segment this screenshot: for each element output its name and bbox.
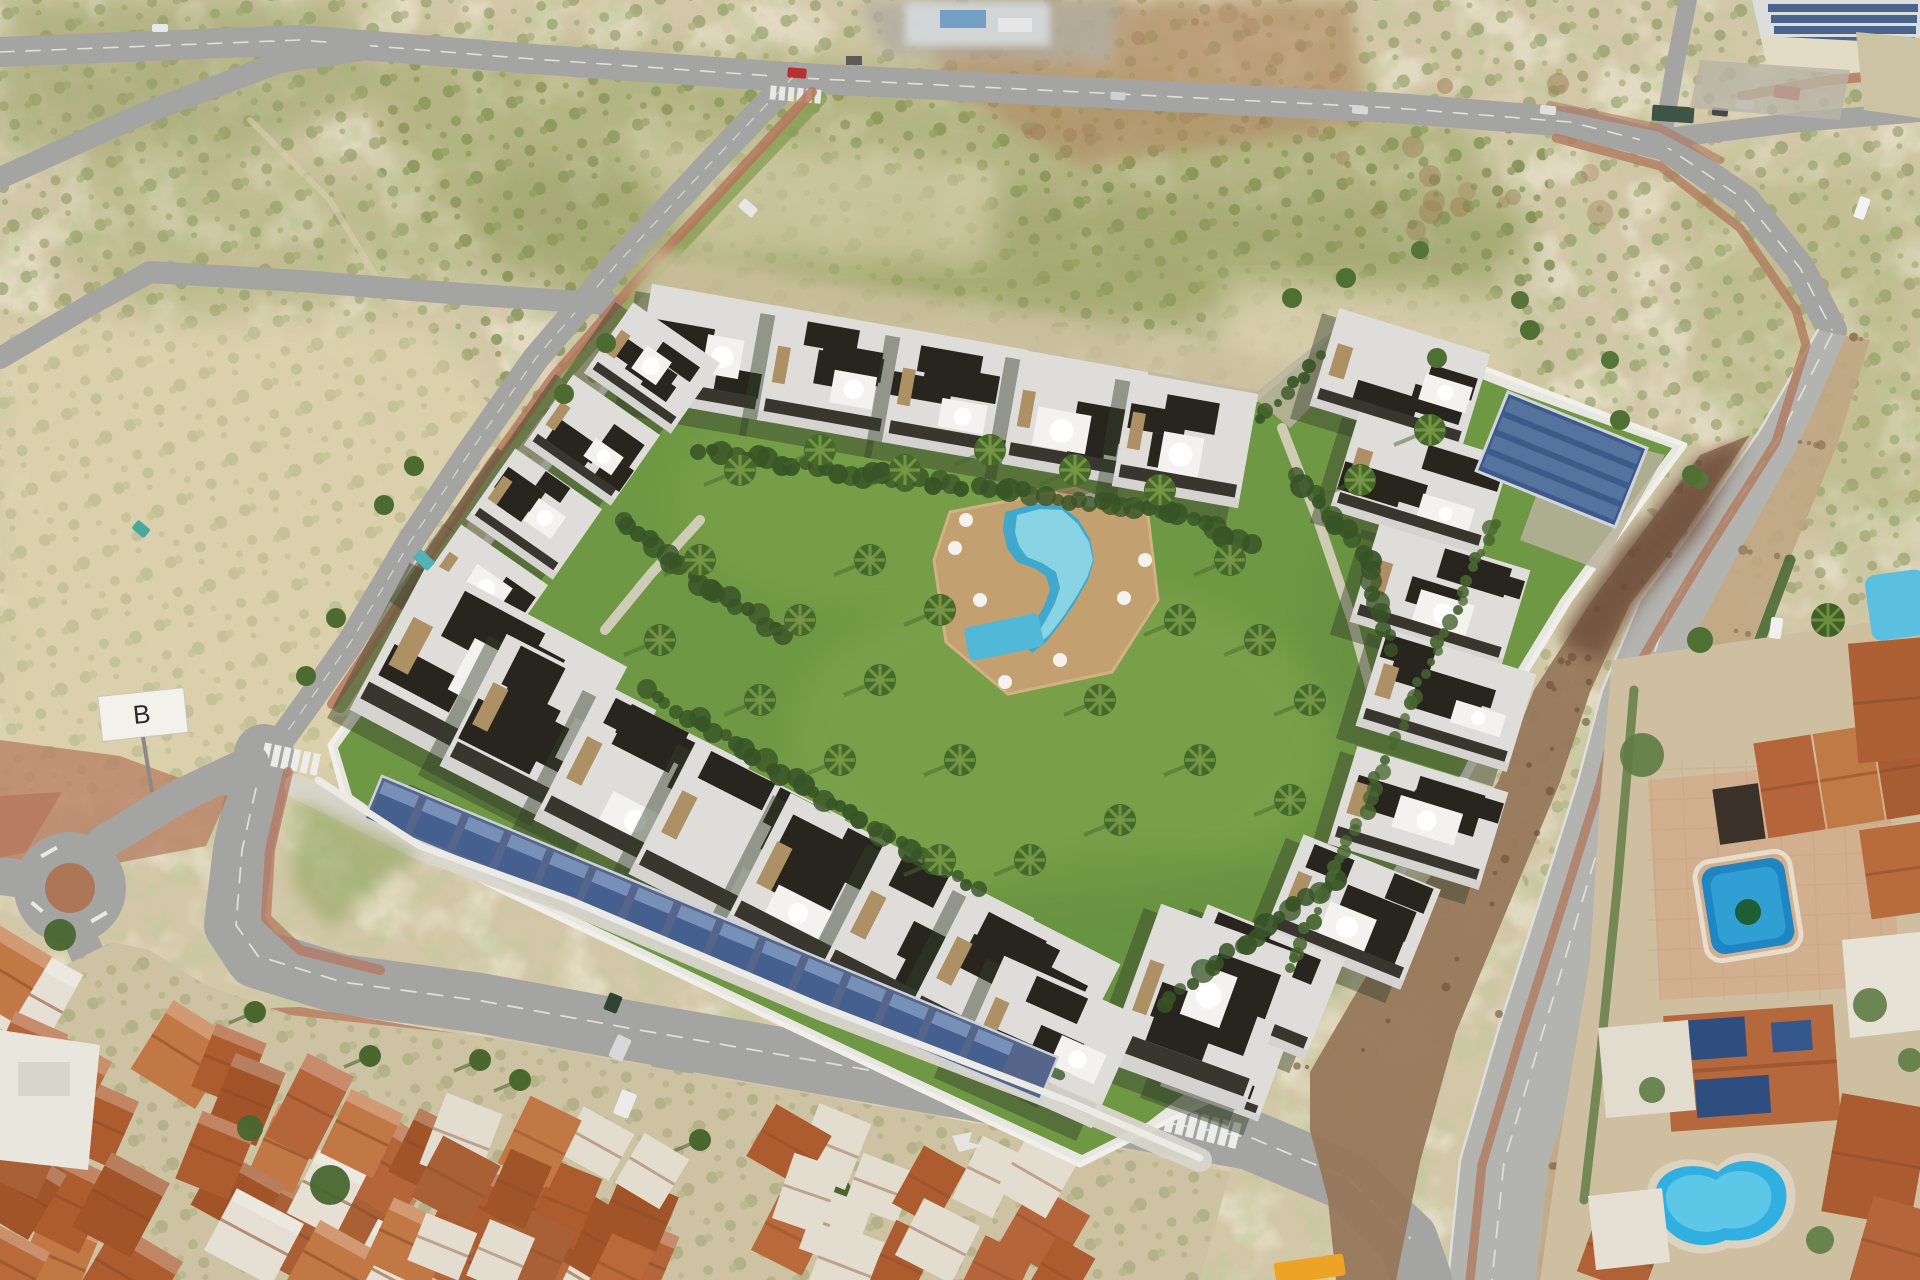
svg-text:B: B	[131, 698, 151, 730]
